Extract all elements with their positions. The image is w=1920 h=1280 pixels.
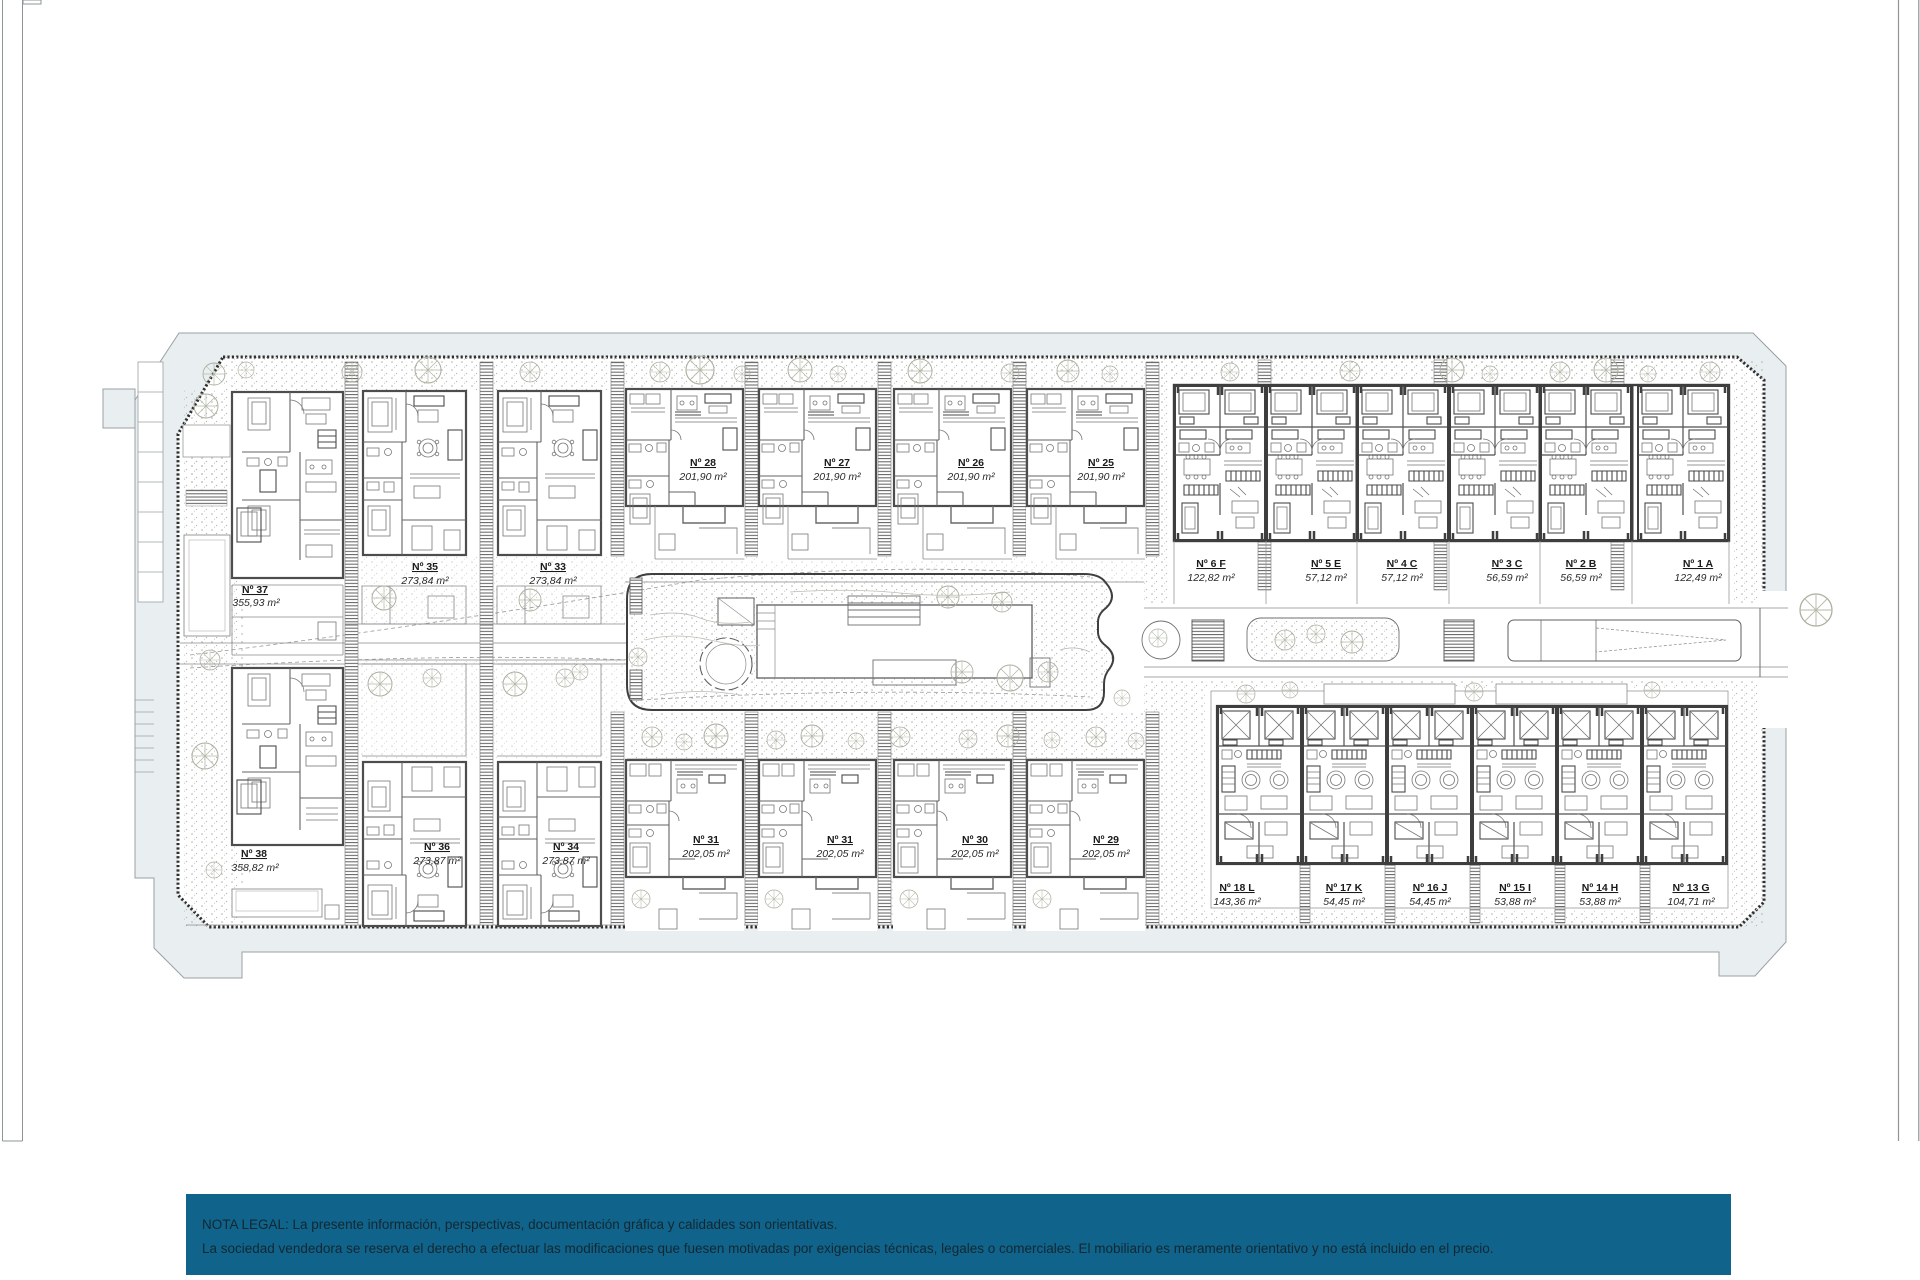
svg-text:Nº 13 G: Nº 13 G — [1672, 882, 1709, 894]
svg-text:Nº 2 B: Nº 2 B — [1566, 558, 1597, 570]
svg-text:Nº 34: Nº 34 — [553, 841, 579, 853]
svg-text:201,90 m²: 201,90 m² — [678, 471, 727, 483]
svg-text:Nº 26: Nº 26 — [958, 457, 984, 469]
svg-text:53,88 m²: 53,88 m² — [1494, 896, 1536, 908]
svg-text:273,84 m²: 273,84 m² — [400, 575, 449, 587]
svg-text:201,90 m²: 201,90 m² — [946, 471, 995, 483]
svg-text:54,45 m²: 54,45 m² — [1409, 896, 1451, 908]
svg-text:104,71 m²: 104,71 m² — [1667, 896, 1715, 908]
svg-text:Nº 18 L: Nº 18 L — [1219, 882, 1255, 894]
svg-text:143,36 m²: 143,36 m² — [1213, 896, 1261, 908]
svg-text:57,12 m²: 57,12 m² — [1305, 572, 1347, 584]
svg-text:54,45 m²: 54,45 m² — [1323, 896, 1365, 908]
svg-text:Nº 35: Nº 35 — [412, 561, 438, 573]
svg-text:Nº 15 I: Nº 15 I — [1499, 882, 1531, 894]
svg-text:202,05 m²: 202,05 m² — [1081, 848, 1130, 860]
svg-text:Nº 30: Nº 30 — [962, 834, 988, 846]
svg-text:Nº 1 A: Nº 1 A — [1683, 558, 1714, 570]
svg-text:Nº 37: Nº 37 — [242, 584, 268, 596]
svg-text:122,82 m²: 122,82 m² — [1187, 572, 1235, 584]
svg-text:273,87 m²: 273,87 m² — [412, 855, 461, 867]
svg-text:Nº 4 C: Nº 4 C — [1387, 558, 1418, 570]
svg-text:Nº 28: Nº 28 — [690, 457, 716, 469]
svg-text:Nº 16 J: Nº 16 J — [1413, 882, 1448, 894]
svg-text:202,05 m²: 202,05 m² — [815, 848, 864, 860]
svg-text:Nº 17 K: Nº 17 K — [1326, 882, 1363, 894]
svg-text:Nº 25: Nº 25 — [1088, 457, 1114, 469]
svg-text:201,90 m²: 201,90 m² — [1076, 471, 1125, 483]
svg-text:273,84 m²: 273,84 m² — [528, 575, 577, 587]
svg-text:202,05 m²: 202,05 m² — [950, 848, 999, 860]
svg-text:202,05 m²: 202,05 m² — [681, 848, 730, 860]
svg-text:Nº 31: Nº 31 — [693, 834, 719, 846]
svg-text:56,59 m²: 56,59 m² — [1486, 572, 1528, 584]
svg-text:Nº 3 C: Nº 3 C — [1492, 558, 1523, 570]
svg-text:Nº 5 E: Nº 5 E — [1311, 558, 1341, 570]
svg-text:NOTA LEGAL: La presente inform: NOTA LEGAL: La presente información, per… — [202, 1217, 837, 1232]
svg-text:Nº 38: Nº 38 — [241, 848, 267, 860]
svg-text:358,82 m²: 358,82 m² — [231, 862, 279, 874]
svg-text:Nº 36: Nº 36 — [424, 841, 450, 853]
svg-text:53,88 m²: 53,88 m² — [1579, 896, 1621, 908]
svg-text:Nº 31: Nº 31 — [827, 834, 853, 846]
svg-text:Nº 29: Nº 29 — [1093, 834, 1119, 846]
svg-text:Nº 33: Nº 33 — [540, 561, 566, 573]
svg-text:56,59 m²: 56,59 m² — [1560, 572, 1602, 584]
svg-text:La sociedad vendedora se reser: La sociedad vendedora se reserva el dere… — [202, 1241, 1493, 1256]
svg-text:201,90 m²: 201,90 m² — [812, 471, 861, 483]
svg-text:Nº 14 H: Nº 14 H — [1582, 882, 1619, 894]
svg-text:273,87 m²: 273,87 m² — [541, 855, 590, 867]
svg-text:Nº 6 F: Nº 6 F — [1196, 558, 1226, 570]
svg-text:355,93 m²: 355,93 m² — [232, 597, 280, 609]
svg-text:Nº 27: Nº 27 — [824, 457, 850, 469]
svg-text:122,49 m²: 122,49 m² — [1674, 572, 1722, 584]
svg-text:57,12 m²: 57,12 m² — [1381, 572, 1423, 584]
